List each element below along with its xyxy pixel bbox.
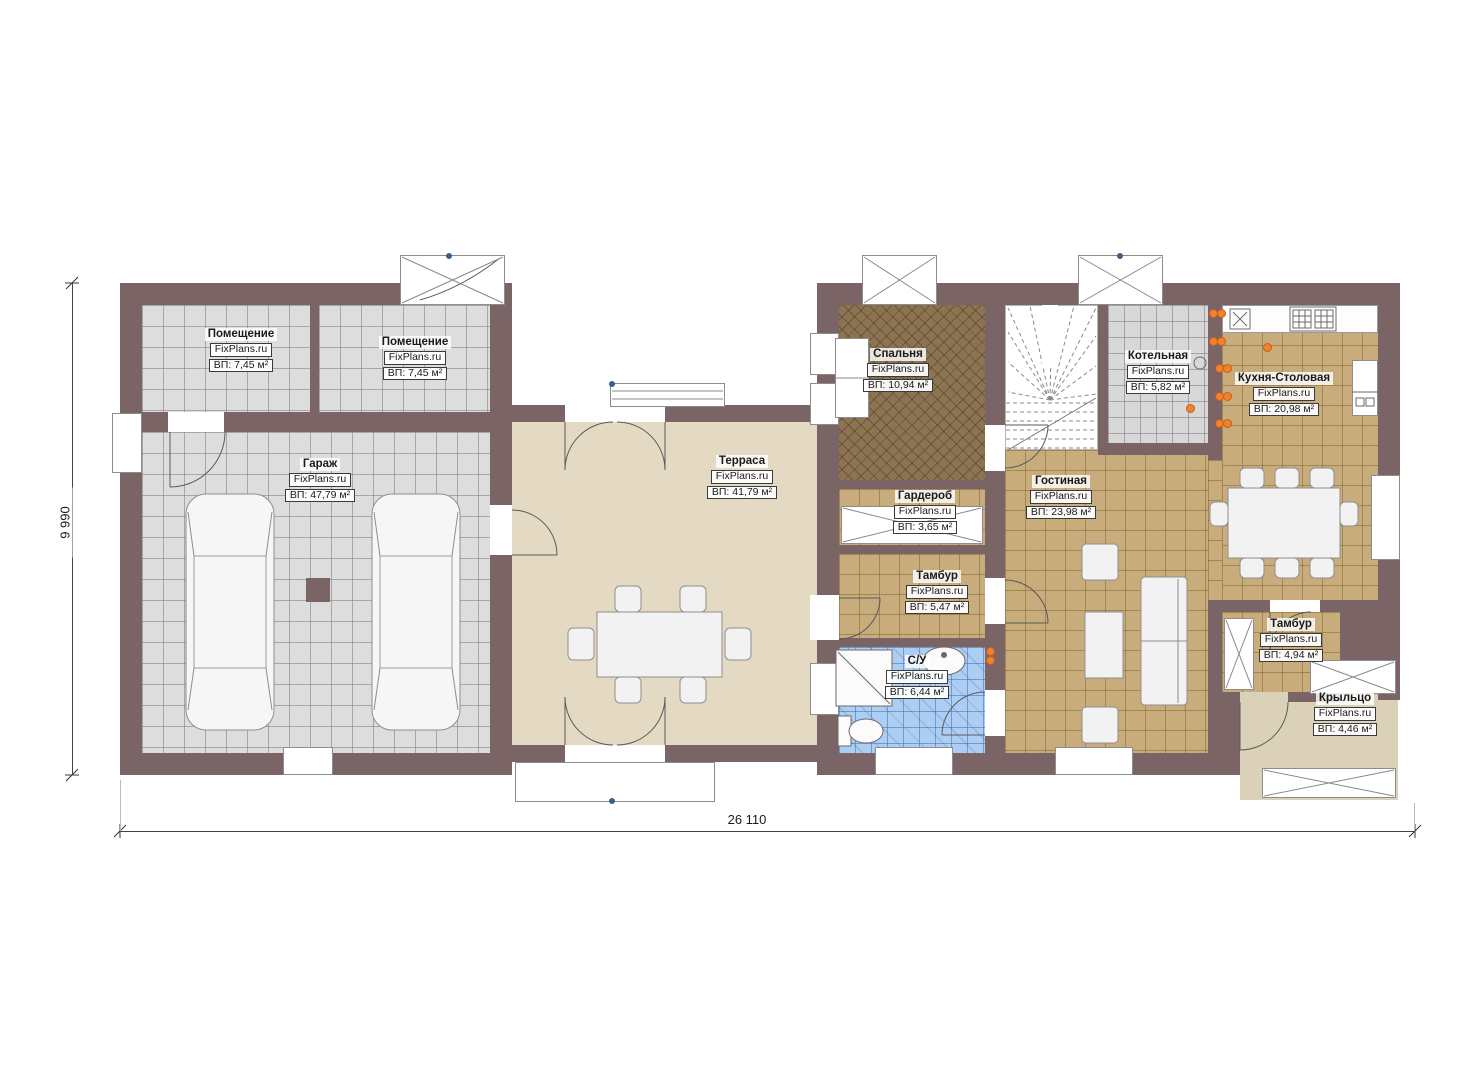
window <box>1371 475 1400 560</box>
dimension-line-bottom <box>120 831 1415 832</box>
room-area: ВП: 23,98 м² <box>1026 506 1096 520</box>
room-area: ВП: 5,82 м² <box>1126 381 1190 395</box>
wall <box>839 480 985 489</box>
room-name: Помещение <box>205 328 278 341</box>
room-label-wardrobe: Гардероб FixPlans.ru ВП: 3,65 м² <box>868 490 982 534</box>
room-name: Кухня-Столовая <box>1235 372 1333 385</box>
wall <box>839 545 985 554</box>
room-label-bathroom: С/У FixPlans.ru ВП: 6,44 м² <box>860 655 974 699</box>
room-name: С/У <box>905 655 930 668</box>
room-label-kitchen: Кухня-Столовая FixPlans.ru ВП: 20,98 м² <box>1222 372 1346 416</box>
room-brand: FixPlans.ru <box>894 505 957 519</box>
wall <box>120 283 142 775</box>
kitchen-counter <box>1222 305 1378 333</box>
room-name: Терраса <box>716 455 768 468</box>
fridge <box>1352 360 1378 416</box>
dimension-label-bottom: 26 110 <box>700 812 794 827</box>
window <box>810 663 839 715</box>
door-opening <box>985 690 1005 736</box>
room-area: ВП: 47,79 м² <box>285 489 355 503</box>
radiator-dot <box>1217 309 1226 318</box>
door-opening <box>490 505 512 555</box>
room-area: ВП: 4,94 м² <box>1259 649 1323 663</box>
room-brand: FixPlans.ru <box>289 473 352 487</box>
room-brand: FixPlans.ru <box>906 585 969 599</box>
radiator-dot <box>1263 343 1272 352</box>
floor-kitchen <box>1222 305 1378 600</box>
room-label-tambour2: Тамбур FixPlans.ru ВП: 4,94 м² <box>1235 618 1347 662</box>
wall <box>839 638 985 647</box>
room-name: Тамбур <box>1267 618 1315 631</box>
room-area: ВП: 5,47 м² <box>905 601 969 615</box>
room-name: Гараж <box>300 458 340 471</box>
wall <box>985 305 1005 753</box>
dimension-label-left: 9 990 <box>58 488 73 558</box>
room-label-tambour1: Тамбур FixPlans.ru ВП: 5,47 м² <box>880 570 994 614</box>
window <box>862 255 937 305</box>
room-name: Тамбур <box>913 570 961 583</box>
door-opening <box>810 595 839 640</box>
terrace-steps <box>515 762 715 802</box>
room-area: ВП: 4,46 м² <box>1313 723 1377 737</box>
terrace-window <box>610 383 725 407</box>
room-brand: FixPlans.ru <box>1314 707 1377 721</box>
garage-gate-window <box>400 255 505 305</box>
room-area: ВП: 20,98 м² <box>1249 403 1319 417</box>
room-brand: FixPlans.ru <box>384 351 447 365</box>
room-name: Крыльцо <box>1316 692 1374 705</box>
door-opening <box>565 745 665 762</box>
room-label-boiler: Котельная FixPlans.ru ВП: 5,82 м² <box>1102 350 1214 394</box>
radiator-dot <box>1223 419 1232 428</box>
window <box>875 747 953 775</box>
room-name: Помещение <box>379 336 452 349</box>
door-opening <box>985 425 1005 471</box>
room-label-pom1: Помещение FixPlans.ru ВП: 7,45 м² <box>182 328 300 372</box>
floor-living-kitchen-opening <box>1208 460 1222 600</box>
wall <box>1222 692 1240 775</box>
room-label-pom2: Помещение FixPlans.ru ВП: 7,45 м² <box>356 336 474 380</box>
window <box>112 413 142 473</box>
room-area: ВП: 10,94 м² <box>863 379 933 393</box>
room-brand: FixPlans.ru <box>1260 633 1323 647</box>
room-brand: FixPlans.ru <box>886 670 949 684</box>
extension-line <box>1414 803 1415 831</box>
room-brand: FixPlans.ru <box>867 363 930 377</box>
radiator-dot <box>1186 404 1195 413</box>
room-area: ВП: 7,45 м² <box>209 359 273 373</box>
floor-stair-hall <box>1005 305 1098 450</box>
wall <box>310 305 319 412</box>
room-brand: FixPlans.ru <box>711 470 774 484</box>
room-brand: FixPlans.ru <box>1030 490 1093 504</box>
door-opening <box>1270 600 1320 612</box>
wall <box>1098 443 1208 455</box>
door-opening <box>565 405 665 422</box>
extension-line <box>120 780 121 831</box>
room-label-porch: Крыльцо FixPlans.ru ВП: 4,46 м² <box>1288 692 1402 736</box>
room-label-living: Гостиная FixPlans.ru ВП: 23,98 м² <box>1004 475 1118 519</box>
room-brand: FixPlans.ru <box>210 343 273 357</box>
radiator-dot <box>986 647 995 656</box>
room-area: ВП: 7,45 м² <box>383 367 447 381</box>
room-brand: FixPlans.ru <box>1253 387 1316 401</box>
window <box>1055 747 1133 775</box>
room-brand: FixPlans.ru <box>1127 365 1190 379</box>
room-label-terrace: Терраса FixPlans.ru ВП: 41,79 м² <box>683 455 801 499</box>
room-label-bedroom: Спальня FixPlans.ru ВП: 10,94 м² <box>843 348 953 392</box>
room-label-garage: Гараж FixPlans.ru ВП: 47,79 м² <box>261 458 379 502</box>
porch-steps <box>1310 660 1396 694</box>
room-name: Котельная <box>1125 350 1191 363</box>
room-name: Спальня <box>870 348 926 361</box>
porch-window <box>1262 768 1396 798</box>
room-area: ВП: 41,79 м² <box>707 486 777 500</box>
room-area: ВП: 6,44 м² <box>885 686 949 700</box>
radiator-dot <box>1217 337 1226 346</box>
door-opening <box>168 412 224 432</box>
room-name: Гостиная <box>1032 475 1090 488</box>
garage-drain <box>306 578 330 602</box>
window <box>1078 255 1163 305</box>
wall <box>1208 612 1222 753</box>
floor-plan: Помещение FixPlans.ru ВП: 7,45 м² Помеще… <box>0 0 1474 1080</box>
radiator-dot <box>986 656 995 665</box>
window <box>283 747 333 775</box>
room-name: Гардероб <box>895 490 955 503</box>
room-area: ВП: 3,65 м² <box>893 521 957 535</box>
